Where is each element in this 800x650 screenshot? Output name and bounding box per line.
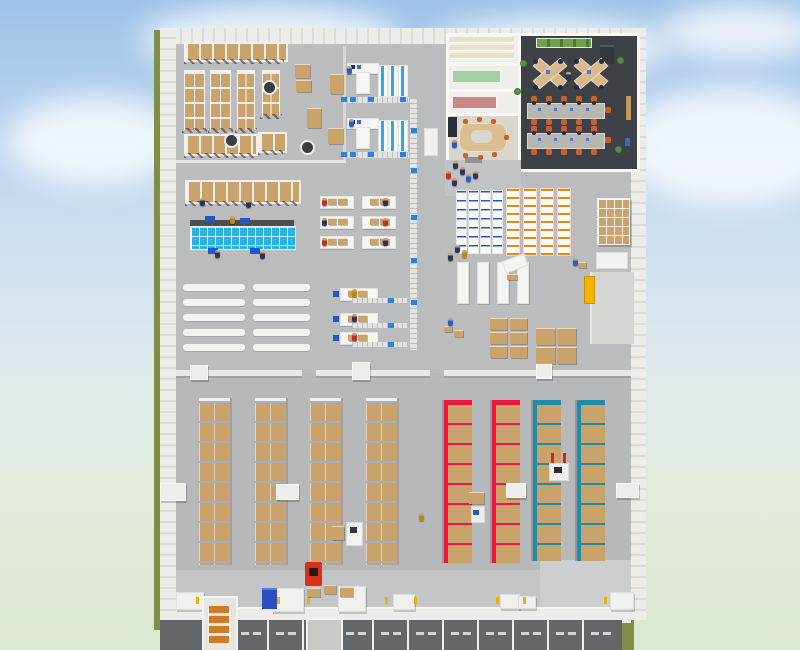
- office-chair-orange: [591, 119, 597, 125]
- flow-lane: [183, 299, 245, 306]
- laptop-icon: [586, 108, 589, 111]
- conveyor-tote: [388, 342, 394, 347]
- wall-board: [626, 96, 631, 120]
- warehouse-3d-viewport[interactable]: [0, 0, 800, 650]
- wall-pillar: [352, 362, 370, 380]
- rack-shadow: [235, 128, 257, 133]
- conveyor-tote: [368, 97, 374, 102]
- rack-shadow: [260, 114, 282, 119]
- meeting-chair: [463, 119, 468, 124]
- worker: [419, 513, 424, 521]
- laptop-icon: [538, 138, 541, 141]
- carton-box: [324, 585, 336, 594]
- laptop-icon: [554, 108, 557, 111]
- pallet-rack-column: [237, 70, 255, 130]
- office-chair-orange: [546, 119, 552, 125]
- office-plant: [520, 60, 527, 67]
- laptop-icon: [554, 138, 557, 141]
- dock-lane-marking: [486, 632, 494, 635]
- carton-box: [307, 108, 321, 128]
- meeting-room-desk: [448, 117, 457, 137]
- office-chair-navy: [574, 85, 579, 90]
- red-table: [451, 95, 498, 110]
- inner-wall-horizontal: [176, 160, 346, 163]
- office-planter: [536, 38, 592, 48]
- worker: [230, 216, 235, 224]
- seated-person: [547, 131, 551, 135]
- pallet-truck-detail: [473, 510, 479, 515]
- carton-box: [444, 326, 452, 332]
- worker: [322, 198, 327, 206]
- meeting-chair: [491, 119, 496, 124]
- worker: [352, 333, 357, 341]
- worker: [452, 178, 457, 186]
- dock-lane-marking: [463, 632, 471, 635]
- bin-shelf-orange: [557, 188, 571, 256]
- carton-box: [510, 318, 527, 330]
- seated-person: [592, 131, 596, 135]
- carton-box: [490, 346, 507, 358]
- dock-lane-divider: [267, 620, 269, 650]
- carton-box: [490, 332, 507, 344]
- worker: [215, 250, 220, 258]
- blue-pallet: [250, 248, 260, 254]
- office-chair-navy: [533, 59, 538, 64]
- dock-lane-marking: [556, 632, 564, 635]
- dock-light-yellow: [277, 597, 280, 604]
- dock-lane-marking: [521, 632, 529, 635]
- forklift-white-seat: [350, 527, 357, 533]
- dock-lane-marking: [428, 632, 436, 635]
- office-long-table: [527, 103, 605, 119]
- office-chair-navy: [574, 59, 579, 64]
- office-long-table: [527, 133, 605, 149]
- office-chair-navy: [533, 85, 538, 90]
- laptop-icon: [570, 108, 573, 111]
- blue-pallet: [333, 335, 339, 341]
- worker: [383, 238, 388, 246]
- conveyor: [352, 342, 408, 347]
- flow-lane: [183, 284, 245, 291]
- carton-box: [358, 315, 367, 322]
- flow-lane: [253, 284, 310, 291]
- worker: [573, 258, 578, 266]
- meeting-chair: [463, 153, 468, 158]
- flow-rack: [388, 65, 398, 97]
- carton-box: [454, 330, 463, 337]
- dock-lane-marking: [381, 632, 389, 635]
- carton-box: [307, 588, 320, 597]
- carton-box: [296, 80, 311, 92]
- dock-lane-marking: [276, 632, 284, 635]
- pallet-rack-tall-teal: [577, 400, 605, 561]
- monitor-icon: [587, 70, 591, 74]
- conveyor-tote: [341, 97, 347, 102]
- dock-light-yellow: [414, 597, 417, 604]
- pallet-rack-column: [184, 70, 205, 130]
- conveyor-tote: [368, 152, 374, 157]
- round-bin: [262, 80, 277, 95]
- carton-box: [358, 290, 367, 297]
- cloud: [660, 4, 800, 60]
- worker: [322, 238, 327, 246]
- carton-box: [370, 238, 378, 245]
- wall-board-blue: [625, 138, 630, 146]
- worker: [466, 174, 471, 182]
- blue-pallet: [333, 291, 339, 297]
- rack-shadow: [184, 59, 284, 64]
- worker: [446, 171, 451, 179]
- dock-platform: [500, 594, 520, 609]
- round-bin: [224, 133, 239, 148]
- conveyor-tote: [388, 298, 394, 303]
- conveyor-tote: [411, 168, 417, 173]
- forklift-white: [346, 522, 363, 546]
- conveyor: [352, 323, 408, 328]
- machine: [424, 128, 438, 156]
- seated-person: [592, 101, 596, 105]
- dock-lane-marking: [346, 632, 354, 635]
- conveyor: [352, 298, 408, 303]
- carton-box: [536, 328, 555, 345]
- white-panel: [477, 262, 489, 304]
- office-chair-orange: [576, 149, 582, 155]
- rack-shadow: [182, 128, 207, 133]
- carton-box: [510, 346, 527, 358]
- worker: [322, 218, 327, 226]
- carton-box: [340, 587, 353, 597]
- blue-pallet: [240, 218, 250, 224]
- wall-pillar: [616, 483, 639, 498]
- cloud: [620, 86, 800, 206]
- monitor-icon: [357, 65, 361, 69]
- seated-person: [547, 101, 551, 105]
- pallet-rack-tall-red: [444, 400, 472, 563]
- dock-lane-divider: [477, 620, 479, 650]
- flow-rack: [398, 120, 408, 152]
- dock-lane-marking: [241, 632, 249, 635]
- flow-lane: [183, 344, 245, 351]
- packing-table: [362, 216, 396, 229]
- truck-cargo: [208, 606, 230, 644]
- rack-shadow: [258, 150, 283, 155]
- meeting-chair: [504, 135, 509, 140]
- dock-lane-marking: [533, 632, 541, 635]
- worker: [448, 318, 453, 326]
- flow-lane: [253, 329, 310, 336]
- office-chair-orange: [531, 119, 537, 125]
- storage-shelf: [450, 53, 514, 59]
- conveyor-tote: [350, 152, 356, 157]
- carton-box: [557, 328, 576, 345]
- carton-box: [328, 238, 336, 245]
- dock-lane-marking: [603, 632, 611, 635]
- worker: [453, 161, 458, 169]
- forklift-reach-detail: [554, 467, 562, 473]
- carton-box: [328, 198, 336, 205]
- monitor-icon: [546, 70, 550, 74]
- conveyor-tote: [388, 323, 394, 328]
- seated-person: [577, 101, 581, 105]
- pallet-rack-tall-tan: [199, 398, 230, 565]
- office-chair-orange: [561, 149, 567, 155]
- dock-lane-marking: [358, 632, 366, 635]
- fence-wall-vertical: [343, 46, 346, 162]
- storage-shelf: [450, 45, 514, 51]
- wall-pillar: [160, 483, 186, 501]
- wall-pillar: [506, 483, 526, 498]
- office-chair-navy: [558, 85, 563, 90]
- office-chair-orange: [546, 149, 552, 155]
- office-plant: [514, 88, 521, 95]
- conveyor-tote: [400, 97, 406, 102]
- flow-lane: [253, 314, 310, 321]
- office-chair-orange: [605, 107, 611, 113]
- meeting-chair: [478, 155, 483, 160]
- carton-box: [557, 347, 576, 364]
- carton-box: [358, 334, 367, 341]
- flow-lane: [183, 314, 245, 321]
- bin-shelf-blue: [480, 190, 491, 254]
- office-plant: [617, 57, 624, 64]
- worker: [260, 251, 265, 259]
- carton-box: [469, 492, 484, 504]
- dock-lane-marking: [498, 632, 506, 635]
- flow-rack: [378, 120, 388, 152]
- conveyor-tote: [411, 258, 417, 263]
- dock-light-yellow: [385, 597, 388, 604]
- carton-box: [338, 218, 347, 225]
- carton-box: [370, 218, 378, 225]
- dock-light-yellow: [496, 597, 499, 604]
- dock-lane-marking: [393, 632, 401, 635]
- dock-platform: [518, 596, 536, 609]
- wall-pillar: [190, 365, 208, 380]
- bin-shelf-blue: [468, 190, 479, 254]
- white-panel: [457, 262, 469, 304]
- pallet-rack-column: [210, 70, 231, 130]
- worker: [462, 250, 467, 258]
- dock-lane-divider: [512, 620, 514, 650]
- blue-pallet: [205, 216, 215, 222]
- conveyor-tote: [411, 300, 417, 305]
- carton-box: [330, 74, 343, 94]
- flow-rack: [378, 65, 388, 97]
- worker: [566, 72, 571, 80]
- dock-platform: [393, 594, 415, 610]
- office-chair-orange: [605, 137, 611, 143]
- rack-shadow: [184, 153, 254, 158]
- dock-lane-marking: [591, 632, 599, 635]
- packing-table: [362, 236, 396, 249]
- wall-pillar: [276, 484, 299, 500]
- conveyor-tote: [411, 215, 417, 220]
- mezzanine-platform: [590, 272, 634, 344]
- bin-shelf-orange: [523, 188, 537, 256]
- office-chair-orange: [576, 119, 582, 125]
- packing-bench: [356, 127, 370, 149]
- meeting-table-cutout: [471, 130, 492, 143]
- forklift-red-window: [309, 568, 318, 576]
- carton-box: [338, 238, 347, 245]
- conveyor-spine: [410, 98, 417, 350]
- meeting-chair: [477, 117, 482, 122]
- office-chair-navy: [599, 59, 604, 64]
- packing-bench: [356, 72, 370, 94]
- monitor-icon: [357, 120, 361, 124]
- pallet-rack-tall-tan: [366, 398, 397, 565]
- carton-box: [490, 318, 507, 330]
- conveyor-tote: [341, 152, 347, 157]
- meeting-chair: [492, 152, 497, 157]
- worker: [383, 198, 388, 206]
- flow-rack: [388, 120, 398, 152]
- office-chair-orange: [531, 149, 537, 155]
- office-chair-orange: [591, 149, 597, 155]
- carton-box: [332, 526, 344, 540]
- worker: [455, 245, 460, 253]
- blue-pallet: [333, 316, 339, 322]
- worker: [349, 119, 354, 127]
- worker: [352, 289, 357, 297]
- cyan-tote-rack: [190, 226, 296, 250]
- office-plant: [615, 146, 622, 153]
- carton-box: [338, 198, 347, 205]
- blue-container: [262, 588, 277, 609]
- bin-shelf-orange: [506, 188, 520, 256]
- seated-person: [562, 131, 566, 135]
- seated-person: [532, 131, 536, 135]
- flow-lane: [253, 299, 310, 306]
- conveyor-tote: [411, 128, 417, 133]
- dock-lane-divider: [302, 620, 304, 650]
- machine: [596, 252, 628, 269]
- dock-lane-divider: [372, 620, 374, 650]
- laptop-icon: [538, 108, 541, 111]
- pallet-rack-tall-red: [492, 400, 520, 563]
- dock-light-yellow: [604, 597, 607, 604]
- worker: [347, 66, 352, 74]
- flow-rack: [398, 65, 408, 97]
- office-chair-navy: [558, 59, 563, 64]
- flow-lane: [183, 329, 245, 336]
- dock-light-yellow: [523, 597, 526, 604]
- worker: [352, 314, 357, 322]
- dock-lane-marking: [568, 632, 576, 635]
- building-wall-left: [160, 28, 176, 620]
- storage-shelf: [450, 37, 514, 43]
- laptop-icon: [570, 138, 573, 141]
- dock-platform: [176, 592, 204, 610]
- worker: [200, 198, 205, 206]
- carton-box: [507, 274, 517, 280]
- carton-box: [370, 198, 378, 205]
- office-chair-orange: [561, 119, 567, 125]
- dock-lane-marking: [253, 632, 261, 635]
- conveyor-tote: [350, 97, 356, 102]
- laptop-icon: [586, 138, 589, 141]
- green-table: [451, 69, 502, 84]
- seated-person: [532, 101, 536, 105]
- packing-table: [362, 196, 396, 209]
- carton-box: [536, 347, 555, 364]
- wall-pillar: [536, 364, 552, 379]
- dock-lane-divider: [442, 620, 444, 650]
- seated-person: [562, 101, 566, 105]
- dock-lane-marking: [288, 632, 296, 635]
- bin-shelf-blue: [492, 190, 503, 254]
- office-chair-navy: [599, 85, 604, 90]
- yellow-pillar: [584, 276, 595, 304]
- dock-lane-divider: [407, 620, 409, 650]
- divider-wall: [316, 370, 430, 376]
- dock-lane-marking: [451, 632, 459, 635]
- flow-lane: [253, 344, 310, 351]
- worker: [448, 253, 453, 261]
- worker: [460, 167, 465, 175]
- carton-box: [578, 262, 586, 268]
- dock-platform: [610, 592, 634, 610]
- carton-rack: [597, 198, 630, 245]
- dock-light-yellow: [307, 597, 310, 604]
- carton-box: [328, 218, 336, 225]
- worker: [246, 200, 251, 208]
- carton-box: [510, 332, 527, 344]
- carton-box: [328, 128, 343, 144]
- conveyor-tote: [400, 152, 406, 157]
- carton-box: [295, 64, 310, 78]
- pallet-rack-tall-tan: [255, 398, 286, 565]
- dock-lane-divider: [582, 620, 584, 650]
- worker: [452, 140, 457, 148]
- seated-person: [577, 131, 581, 135]
- dock-lane-marking: [416, 632, 424, 635]
- round-bin: [300, 140, 315, 155]
- dock-light-yellow: [196, 597, 199, 604]
- worker: [383, 218, 388, 226]
- worker: [473, 171, 478, 179]
- dock-lane-divider: [547, 620, 549, 650]
- truck-trailer: [306, 618, 343, 650]
- bin-shelf-orange: [540, 188, 554, 256]
